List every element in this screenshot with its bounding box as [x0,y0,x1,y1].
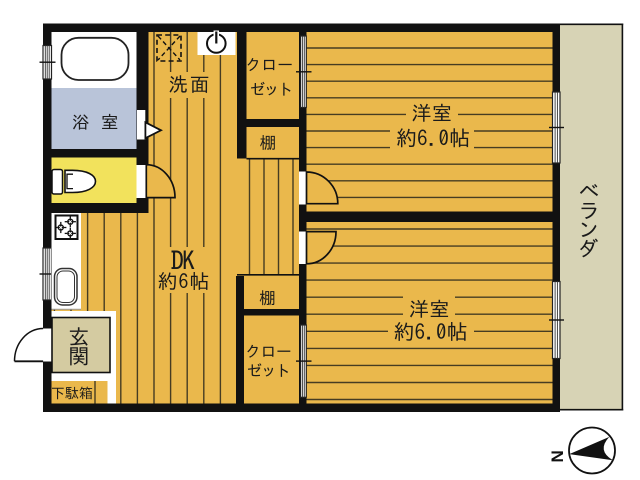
svg-text:N: N [548,450,567,462]
